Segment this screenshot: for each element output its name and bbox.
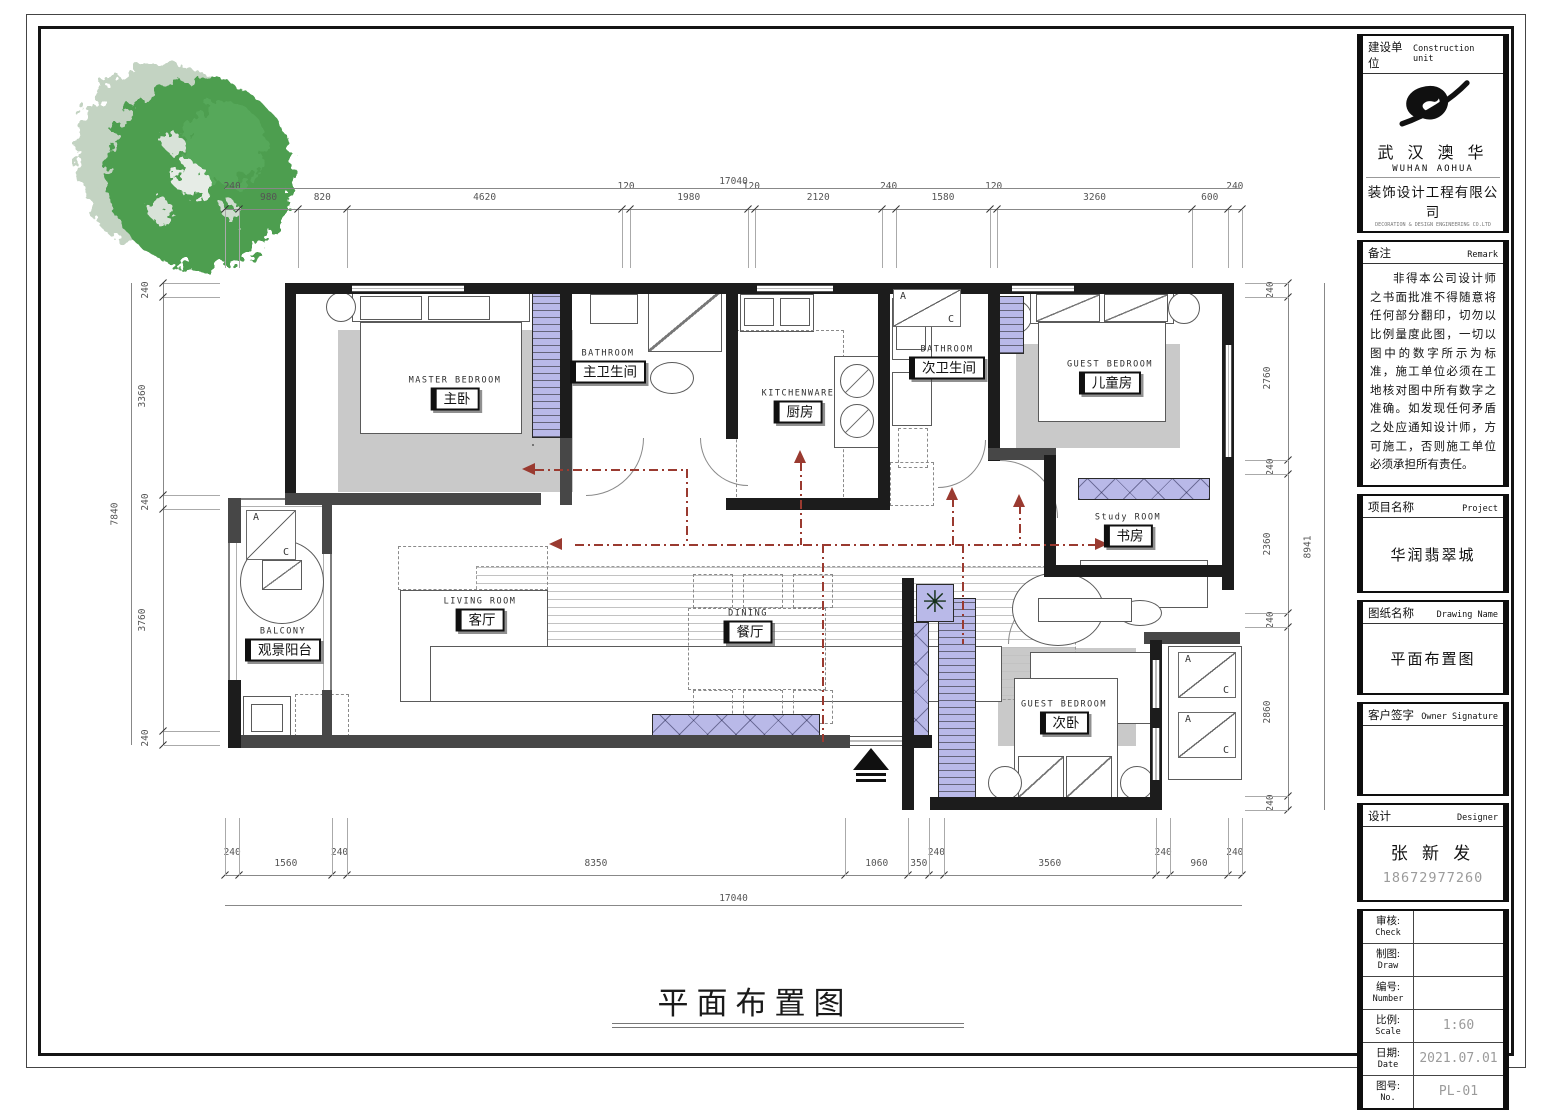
furniture: [648, 290, 722, 352]
window: [757, 285, 833, 292]
ac-letter: C: [1223, 685, 1229, 696]
dimension-chain-right: 240276024023602402860240: [1282, 283, 1294, 810]
dimension-value: 1580: [932, 192, 955, 203]
dimension-value: 820: [314, 192, 331, 203]
designer-phone: 18672977260: [1363, 864, 1503, 900]
row-label-en: No.: [1366, 1093, 1410, 1104]
dimension-value: 240: [331, 847, 348, 858]
project-name: 华润翡翠城: [1363, 518, 1503, 591]
window: [1012, 285, 1074, 292]
dimension-value: 3760: [137, 609, 148, 632]
room-label-living-room: LIVING ROOM 客厅: [444, 597, 517, 632]
furniture: [1104, 294, 1168, 322]
dimension-value: 600: [1201, 192, 1218, 203]
row-value: 2021.07.01: [1414, 1042, 1504, 1075]
furniture: [326, 292, 356, 322]
room-label-en: BALCONY: [245, 627, 321, 637]
ac-letter: C: [283, 547, 289, 558]
section-label-cn: 项目名称: [1368, 499, 1414, 515]
dimension-value: 3260: [1083, 192, 1106, 203]
section-remark: 备注 Remark 非得本公司设计师之书面批准不得随意将任何部分翻印，切勿以比例…: [1357, 240, 1509, 487]
section-construction-unit: 建设单位 Construction unit 武 汉 澳 华 WUHAN AOH…: [1357, 34, 1509, 233]
dimension-value: 240: [140, 729, 151, 746]
designer-name: 张 新 发: [1363, 827, 1503, 864]
dimension-value: 240: [1265, 794, 1276, 811]
wall-segment: [902, 735, 932, 748]
room-label-guest-bedroom: GUEST BEDROOM 次卧: [1021, 700, 1107, 735]
furniture: [590, 294, 638, 324]
furniture: [793, 574, 833, 608]
owner-signature-area: [1363, 726, 1503, 794]
room-label-balcony: BALCONY 观景阳台: [245, 627, 321, 662]
title-block: 建设单位 Construction unit 武 汉 澳 华 WUHAN AOH…: [1357, 34, 1509, 1117]
ac-unit-icon: A C: [893, 289, 961, 327]
furniture: [398, 546, 548, 590]
company-subname-en: DECORATION & DESIGN ENGINEERING CO.LTD: [1369, 222, 1498, 228]
dimension-total-value: 8941: [1303, 535, 1314, 558]
wall-segment: [285, 283, 296, 505]
table-row: 比例:Scale 1:60: [1363, 1009, 1503, 1042]
ac-unit-icon: A C: [1178, 712, 1236, 758]
wall-segment: [878, 283, 890, 510]
wall-segment: [1044, 565, 1234, 577]
company-name-en: WUHAN AOHUA: [1363, 164, 1503, 174]
circulation-line: [822, 544, 824, 742]
furniture: [1036, 294, 1100, 322]
room-label-cn: 观景阳台: [245, 639, 321, 662]
row-label-en: Scale: [1366, 1027, 1410, 1038]
dimension-value: 1980: [677, 192, 700, 203]
furniture: [743, 574, 783, 608]
row-label-cn: 图号:: [1376, 1081, 1400, 1092]
furniture: [1168, 292, 1200, 324]
furniture: [251, 704, 283, 732]
window: [850, 736, 902, 746]
dimension-value: 8350: [584, 858, 607, 869]
dimension-value: 240: [1265, 458, 1276, 475]
furniture: [1120, 766, 1154, 800]
dimension-total-left: 7840: [125, 283, 138, 745]
dimension-chain-left: 24033602403760240: [157, 283, 169, 745]
window: [1225, 345, 1232, 457]
wall-segment: [322, 498, 332, 554]
section-label-cn: 图纸名称: [1368, 605, 1414, 621]
room-label-master-bathroom: BATHROOM 主卫生间: [570, 349, 646, 384]
dimension-total-bottom: 17040: [225, 893, 1242, 906]
table-row: 编号:Number: [1363, 976, 1503, 1009]
window: [1152, 728, 1160, 780]
room-label-master-bedroom: MASTER BEDROOM 主卧: [409, 376, 502, 411]
dimension-chain-bottom: 2401560240835010603502403560240960240: [225, 869, 1242, 881]
section-label-en: Project: [1462, 504, 1498, 514]
dimension-value: 1560: [274, 858, 297, 869]
dimension-value: 3360: [137, 385, 148, 408]
ac-letter: A: [1185, 654, 1191, 665]
dimension-value: 2760: [1262, 367, 1273, 390]
room-label-en: BATHROOM: [909, 345, 985, 355]
dimension-value: 240: [140, 281, 151, 298]
room-label-cn: 餐厅: [724, 621, 773, 644]
furniture: [780, 298, 810, 326]
section-label-cn: 建设单位: [1368, 39, 1413, 71]
row-label-cn: 制图:: [1376, 949, 1400, 960]
dimension-total-right: 8941: [1318, 283, 1331, 810]
row-value: [1414, 911, 1504, 944]
circulation-arrow-icon: [794, 450, 806, 463]
table-row: 图号:No. PL-01: [1363, 1075, 1503, 1108]
closet: [1078, 478, 1210, 500]
room-label-en: MASTER BEDROOM: [409, 376, 502, 386]
furniture: [360, 296, 422, 320]
door-arc: [938, 440, 986, 488]
ac-letter: A: [1185, 714, 1191, 725]
section-label-cn: 备注: [1368, 245, 1391, 261]
circulation-line: [952, 498, 954, 545]
company-name-cn: 武 汉 澳 华: [1363, 139, 1503, 163]
entrance-arrow-icon: [853, 748, 889, 782]
wall-segment: [988, 283, 1000, 461]
furniture: [1038, 598, 1132, 622]
circulation-arrow-icon: [946, 487, 958, 500]
room-label-en: DINING: [724, 609, 773, 619]
dimension-value: 240: [1155, 847, 1172, 858]
dimension-value: 1060: [865, 858, 888, 869]
circulation-arrow-icon: [1013, 494, 1025, 507]
dimension-total-value: 17040: [719, 893, 748, 904]
furniture: [890, 462, 934, 506]
row-label-en: Number: [1366, 994, 1410, 1005]
circulation-line: [962, 544, 964, 644]
ac-letter: A: [253, 512, 259, 523]
room-label-en: KITCHENWARE: [762, 389, 835, 399]
ac-unit-icon: A C: [1178, 652, 1236, 698]
furniture: [1018, 756, 1064, 798]
drawing-title: 平面布置图: [658, 978, 853, 1023]
dimension-value: 240: [140, 494, 151, 511]
wall-segment: [902, 578, 914, 810]
furniture: [988, 766, 1022, 800]
circulation-line: [800, 462, 802, 545]
room-label-cn: 主卧: [431, 388, 480, 411]
section-designer: 设计 Designer 张 新 发 18672977260: [1357, 803, 1509, 902]
row-value: [1414, 976, 1504, 1009]
table-row: 审核:Check: [1363, 911, 1503, 944]
room-label-dining: DINING 餐厅: [724, 609, 773, 644]
dimension-value: 350: [910, 858, 927, 869]
room-label-kitchen: KITCHENWARE 厨房: [762, 389, 835, 424]
section-label-en: Drawing Name: [1437, 610, 1498, 620]
dimension-value: 240: [224, 847, 241, 858]
dimension-value: 240: [1226, 847, 1243, 858]
dimension-total-value: 7840: [110, 503, 121, 526]
room-label-cn: 厨房: [773, 401, 822, 424]
row-label-cn: 编号:: [1376, 982, 1400, 993]
dimension-total-value: 17040: [719, 176, 748, 187]
ac-unit-icon: A C: [246, 510, 296, 560]
room-label-cn: 主卫生间: [570, 361, 646, 384]
row-label-en: Check: [1366, 928, 1410, 939]
door-arc: [586, 438, 644, 496]
tree-icon: [72, 52, 310, 295]
room-label-en: Study ROOM: [1095, 513, 1161, 523]
furniture: [262, 560, 302, 590]
row-value: 1:60: [1414, 1009, 1504, 1042]
window: [352, 285, 464, 292]
row-label-en: Draw: [1366, 961, 1410, 972]
wall-segment: [228, 680, 241, 748]
furniture: [1066, 756, 1112, 798]
wardrobe: [938, 598, 976, 800]
dimension-value: 4620: [473, 192, 496, 203]
company-subname-cn: 装饰设计工程有限公司: [1366, 177, 1500, 221]
section-label-en: Remark: [1467, 250, 1498, 260]
circulation-arrow-icon: [522, 463, 535, 475]
section-label-en: Owner Signature: [1421, 712, 1498, 722]
drawing-name: 平面布置图: [1363, 624, 1503, 693]
table-row: 制图:Draw: [1363, 943, 1503, 976]
circulation-line: [686, 469, 688, 545]
section-owner-signature: 客户签字 Owner Signature: [1357, 702, 1509, 796]
room-label-en: GUEST BEDROOM: [1021, 700, 1107, 710]
dimension-value: 960: [1190, 858, 1207, 869]
room-label-cn: 书房: [1104, 525, 1153, 548]
room-label-children-room: GUEST BEDROOM 儿童房: [1067, 360, 1153, 395]
dimension-value: 2860: [1262, 700, 1273, 723]
dimension-value: 2120: [807, 192, 830, 203]
ac-letter: C: [948, 314, 954, 325]
wall-segment: [930, 797, 1162, 810]
furniture: [650, 362, 694, 394]
dimension-value: 2360: [1262, 532, 1273, 555]
section-label-cn: 客户签字: [1368, 707, 1414, 723]
row-label-cn: 比例:: [1376, 1015, 1400, 1026]
room-label-second-bathroom: BATHROOM 次卫生间: [909, 345, 985, 380]
room-label-study-room: Study ROOM 书房: [1095, 513, 1161, 548]
furniture: [840, 364, 874, 398]
furniture: [840, 404, 874, 438]
wall-segment: [726, 283, 738, 439]
room-label-cn: 次卫生间: [909, 357, 985, 380]
section-project: 项目名称 Project 华润翡翠城: [1357, 494, 1509, 593]
room-label-cn: 次卧: [1040, 712, 1089, 735]
room-label-cn: 儿童房: [1079, 372, 1142, 395]
window: [1152, 660, 1160, 708]
furniture: [744, 298, 774, 326]
dimension-value: 3560: [1038, 858, 1061, 869]
drawing-title-underline: [612, 1023, 964, 1028]
row-value: [1414, 943, 1504, 976]
table-row: 日期:Date 2021.07.01: [1363, 1042, 1503, 1075]
wall-segment: [560, 438, 572, 505]
room-label-en: BATHROOM: [570, 349, 646, 359]
row-label-en: Date: [1366, 1060, 1410, 1071]
wall-segment: [726, 498, 890, 510]
section-label-en: Designer: [1457, 813, 1498, 823]
furniture: [532, 444, 534, 446]
furniture: [428, 296, 490, 320]
dimension-value: 240: [1265, 612, 1276, 629]
wall-segment: [228, 498, 241, 543]
dimension-value: 240: [1265, 281, 1276, 298]
wall-segment: [322, 690, 332, 748]
wardrobe: [532, 288, 562, 438]
section-label-cn: 设计: [1368, 808, 1391, 824]
remark-text: 非得本公司设计师之书面批准不得随意将任何部分翻印，切勿以比例量度此图，一切以图中…: [1363, 264, 1503, 485]
company-logo: [1363, 74, 1503, 139]
section-drawing-name: 图纸名称 Drawing Name 平面布置图: [1357, 600, 1509, 695]
ac-letter: A: [900, 291, 906, 302]
furniture: [892, 372, 932, 426]
row-value: PL-01: [1414, 1075, 1504, 1108]
ac-letter: C: [1223, 745, 1229, 756]
wall-segment: [1044, 455, 1056, 577]
circulation-line: [535, 469, 687, 471]
room-label-cn: 客厅: [455, 609, 504, 632]
dimension-total-top: 17040: [225, 176, 1242, 189]
row-label-cn: 审核:: [1376, 916, 1400, 927]
dimension-value: 240: [928, 847, 945, 858]
furniture: [693, 574, 733, 608]
circulation-line: [575, 544, 1095, 546]
room-label-en: GUEST BEDROOM: [1067, 360, 1153, 370]
plant-icon: ✳: [916, 584, 954, 622]
section-label-en: Construction unit: [1413, 44, 1498, 64]
room-label-en: LIVING ROOM: [444, 597, 517, 607]
dimension-value: 980: [260, 192, 277, 203]
circulation-line: [1019, 505, 1021, 545]
circulation-arrow-icon: [549, 538, 562, 550]
row-label-cn: 日期:: [1376, 1048, 1400, 1059]
dimension-chain-top: 2409808204620120198012021202401580120326…: [225, 203, 1242, 215]
